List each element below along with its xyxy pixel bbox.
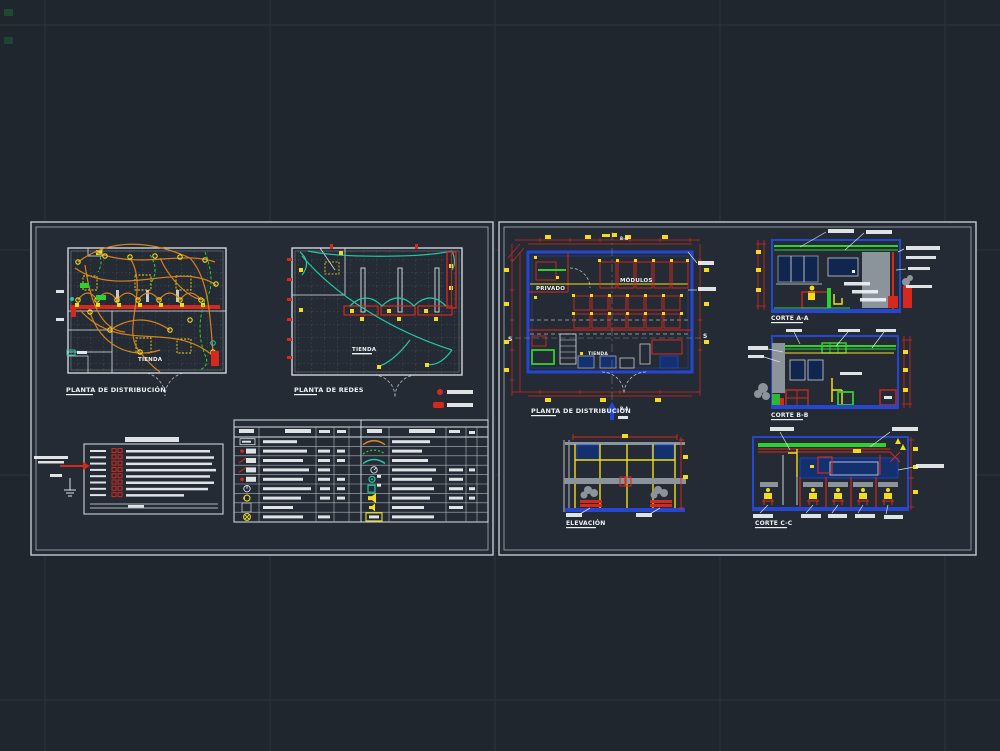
- corte-aa-label: CORTE A-A: [771, 315, 809, 322]
- section-marker-right: S: [703, 333, 708, 340]
- room-label-tienda-r: TIENDA: [588, 351, 608, 357]
- plan-distribucion-left: TIENDA PLANTA DE DISTRIBUCIÓN: [56, 244, 226, 396]
- sheet-left[interactable]: TIENDA PLANTA DE DISTRIBUCIÓN: [31, 222, 493, 555]
- cad-viewport[interactable]: TIENDA PLANTA DE DISTRIBUCIÓN: [0, 0, 1000, 751]
- marker-top-label: B-A: [620, 236, 629, 241]
- legend-dot-icon: [437, 389, 443, 395]
- room-label-privado: PRIVADO: [536, 286, 565, 292]
- room-label-modulos: MÓDULOS: [620, 277, 653, 284]
- corte-bb-label: CORTE B-B: [771, 412, 809, 419]
- section-marker-left: S: [508, 336, 513, 343]
- sheet-right[interactable]: PRIVADO MÓDULOS TIENDA S S B-A B-A PLANT…: [499, 222, 976, 555]
- legend-box-icon: [433, 402, 444, 408]
- plan-b-title: PLANTA DE REDES: [294, 386, 364, 394]
- plant-right: [902, 275, 913, 308]
- plan-right-title: PLANTA DE DISTRIBUCIÓN: [531, 406, 631, 415]
- room-label-tienda-a: TIENDA: [138, 357, 163, 363]
- plan-a-title: PLANTA DE DISTRIBUCIÓN: [66, 385, 166, 394]
- corte-cc-label: CORTE C-C: [755, 520, 793, 527]
- stray-mark: [4, 9, 13, 16]
- elevacion-label: ELEVACIÓN: [566, 520, 605, 527]
- room-label-tienda-b: TIENDA: [352, 347, 377, 353]
- cad-model-space[interactable]: TIENDA PLANTA DE DISTRIBUCIÓN: [0, 0, 1000, 751]
- stray-mark: [4, 37, 13, 44]
